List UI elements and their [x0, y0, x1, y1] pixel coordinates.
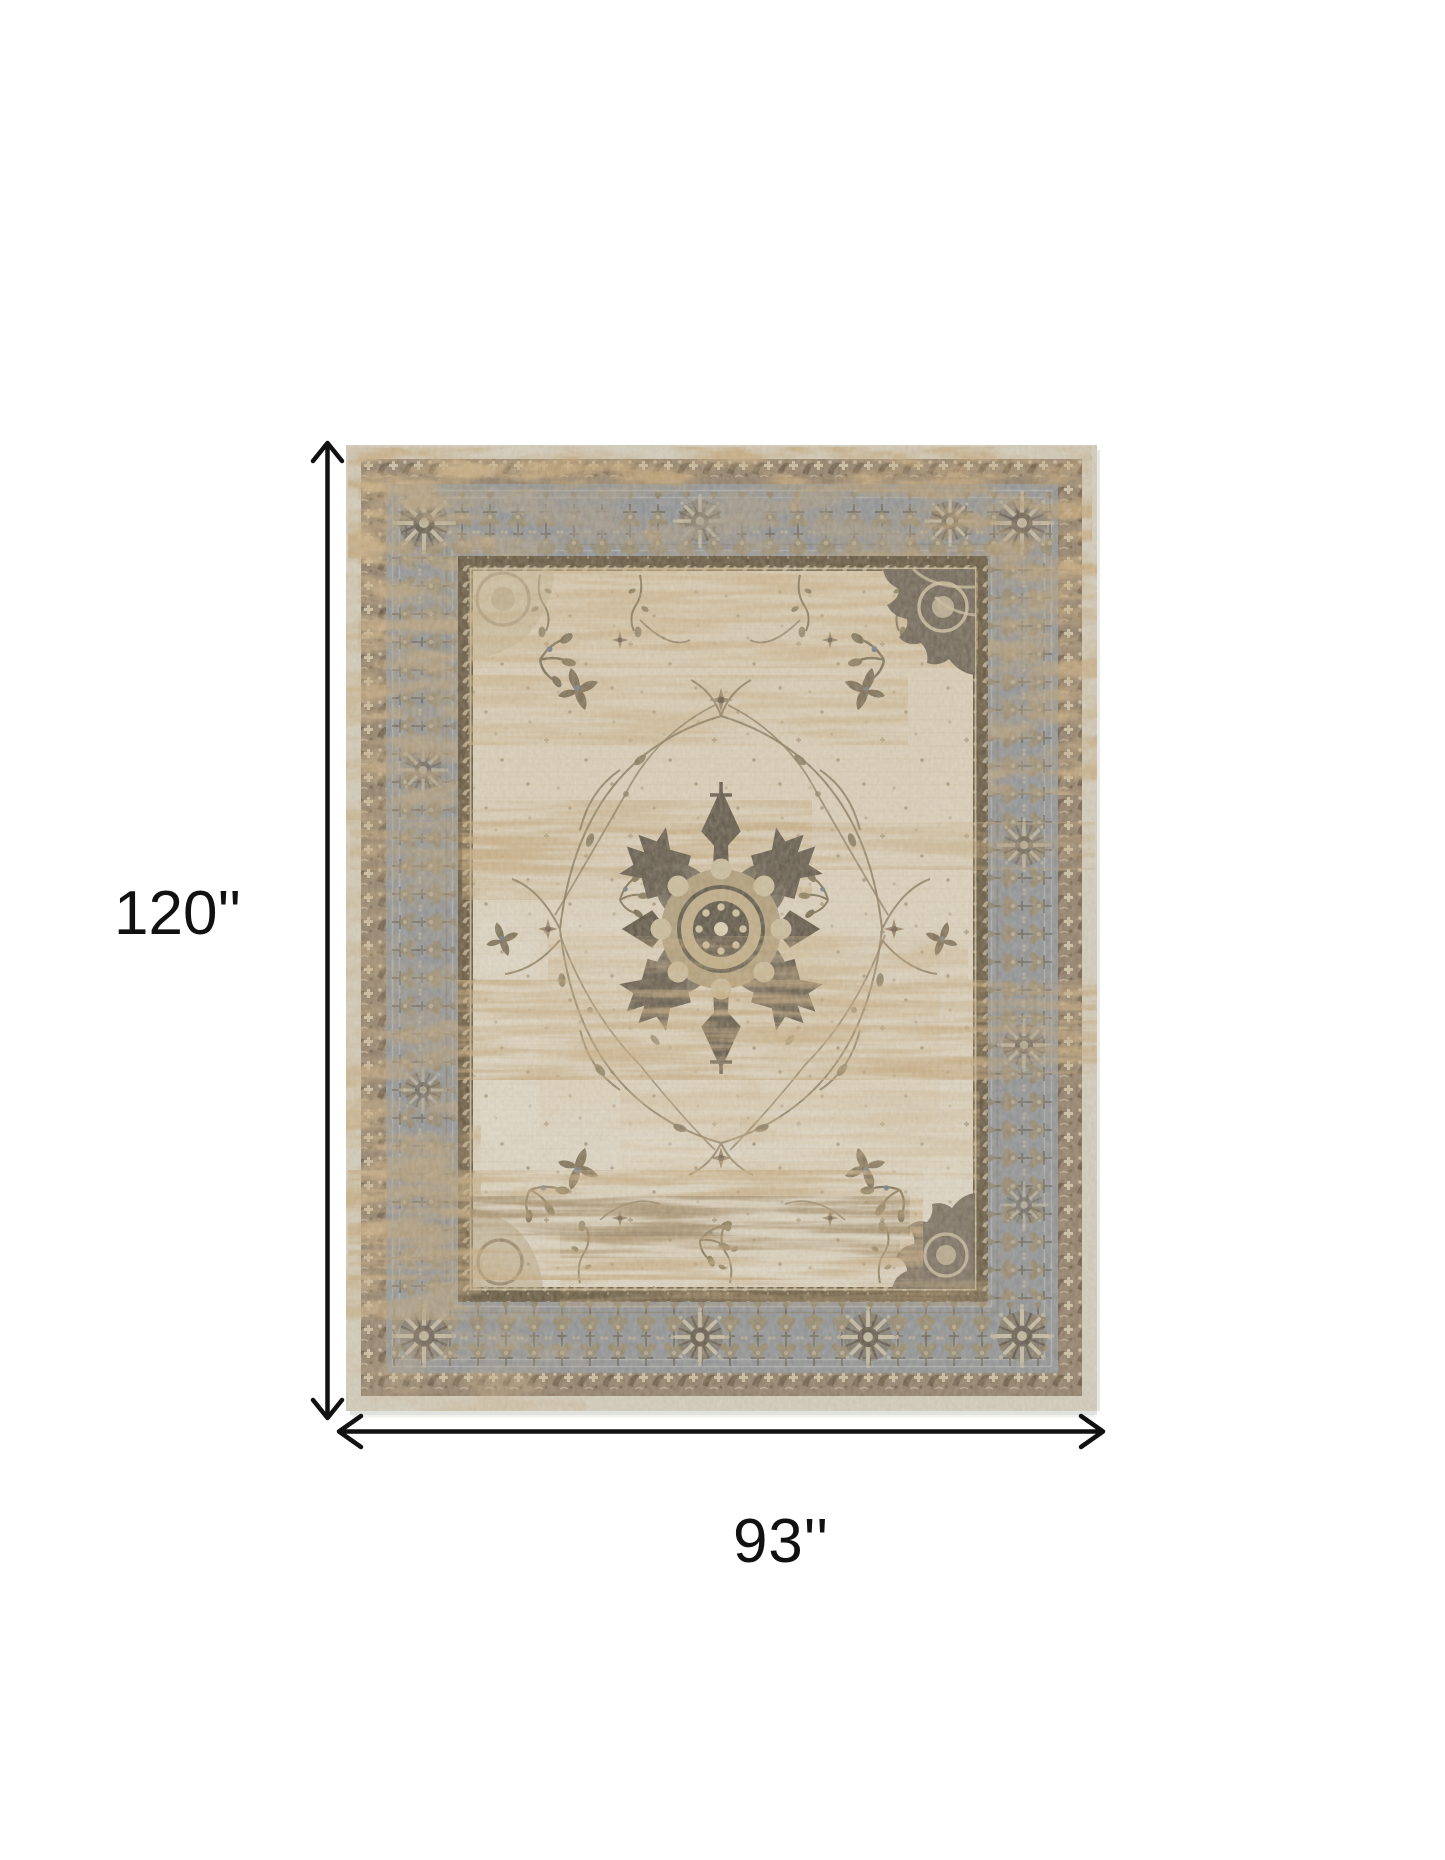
svg-text:120'': 120'' [114, 879, 241, 948]
svg-text:93'': 93'' [733, 1507, 829, 1576]
